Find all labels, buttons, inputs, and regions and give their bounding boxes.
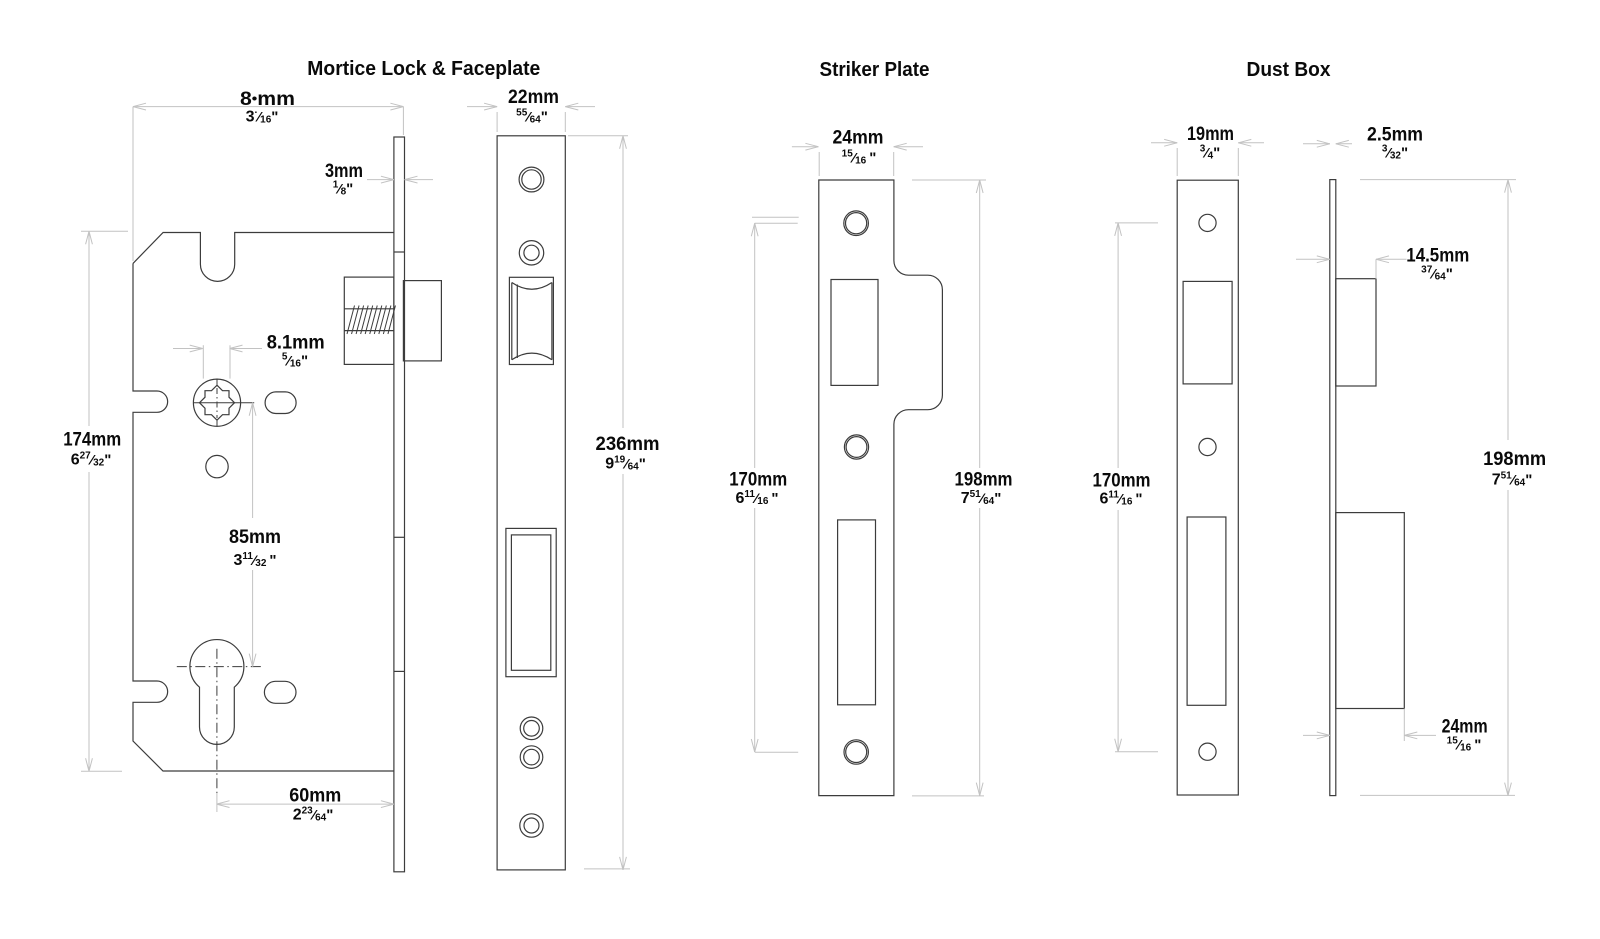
svg-text:751⁄64": 751⁄64" — [961, 489, 1002, 507]
svg-text:Striker Plate: Striker Plate — [820, 59, 930, 81]
svg-text:627⁄32": 627⁄32" — [71, 451, 112, 469]
svg-text:919⁄64": 919⁄64" — [605, 455, 646, 473]
svg-text:170mm: 170mm — [729, 470, 787, 491]
svg-text:24mm: 24mm — [1442, 717, 1488, 738]
svg-text:85mm: 85mm — [229, 527, 281, 548]
svg-text:3mm: 3mm — [325, 161, 363, 182]
svg-text:8•mm: 8•mm — [240, 89, 295, 110]
svg-text:22mm: 22mm — [508, 87, 559, 108]
svg-text:Dust Box: Dust Box — [1247, 59, 1331, 81]
svg-text:174mm: 174mm — [63, 429, 121, 450]
svg-text:19mm: 19mm — [1187, 124, 1234, 145]
svg-text:311⁄32 ": 311⁄32 " — [233, 551, 276, 569]
svg-text:170mm: 170mm — [1093, 470, 1151, 491]
svg-text:8.1mm: 8.1mm — [267, 333, 325, 354]
svg-text:Mortice Lock & Faceplate: Mortice Lock & Faceplate — [307, 58, 540, 80]
svg-text:14.5mm: 14.5mm — [1406, 246, 1469, 267]
svg-text:24mm: 24mm — [833, 128, 884, 149]
svg-text:223⁄64": 223⁄64" — [293, 806, 334, 824]
svg-text:2.5mm: 2.5mm — [1367, 125, 1423, 146]
svg-text:611⁄16 ": 611⁄16 " — [1099, 490, 1142, 508]
svg-text:611⁄16 ": 611⁄16 " — [735, 489, 778, 507]
svg-text:236mm: 236mm — [596, 434, 660, 455]
svg-text:60mm: 60mm — [289, 786, 341, 807]
svg-text:198mm: 198mm — [955, 470, 1013, 491]
svg-text:198mm: 198mm — [1483, 449, 1546, 470]
svg-text:751⁄64": 751⁄64" — [1492, 471, 1533, 489]
